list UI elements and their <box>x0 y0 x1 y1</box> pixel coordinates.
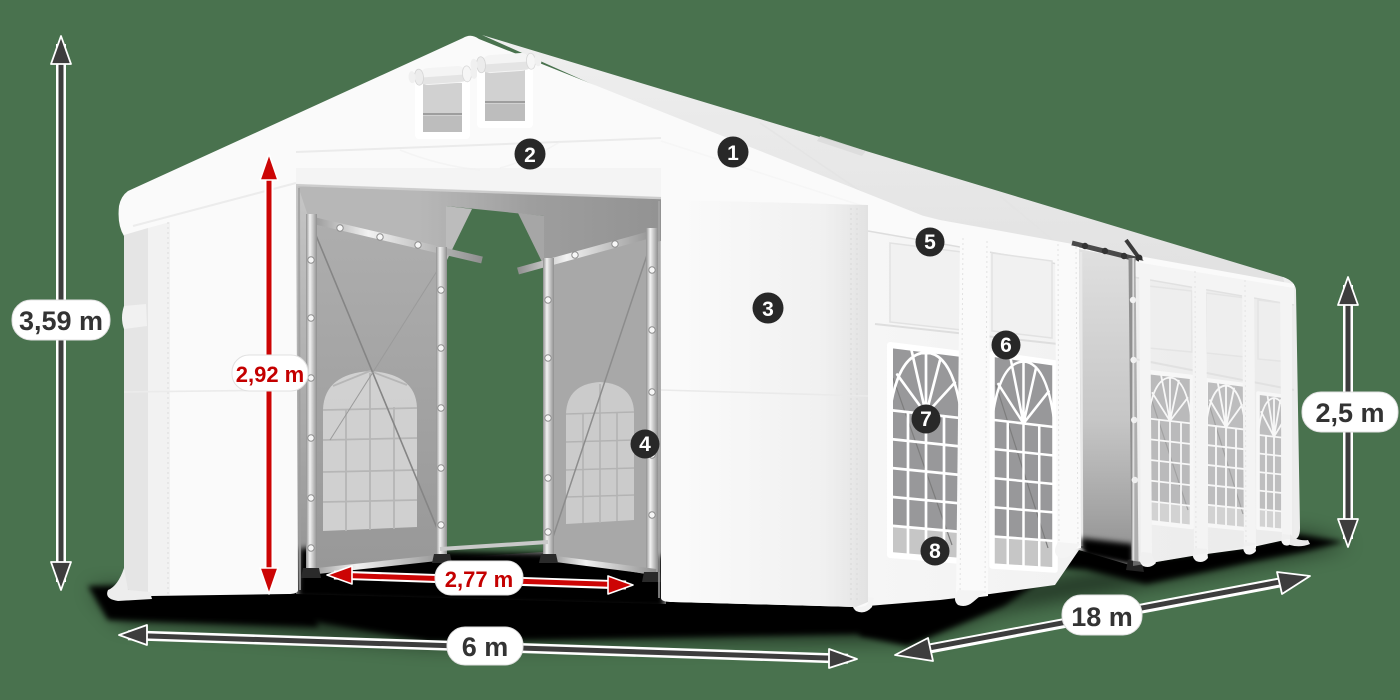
svg-text:8: 8 <box>929 540 941 563</box>
svg-text:2,77 m: 2,77 m <box>445 567 514 592</box>
svg-text:2,5 m: 2,5 m <box>1315 398 1384 428</box>
svg-text:3: 3 <box>762 298 774 321</box>
svg-text:6 m: 6 m <box>462 632 509 662</box>
svg-text:3,59 m: 3,59 m <box>19 306 103 336</box>
svg-text:2: 2 <box>524 144 536 167</box>
svg-text:6: 6 <box>1000 334 1012 357</box>
svg-text:2,92 m: 2,92 m <box>236 362 305 387</box>
svg-text:5: 5 <box>924 231 936 254</box>
svg-text:18 m: 18 m <box>1071 602 1133 632</box>
svg-text:7: 7 <box>920 408 932 431</box>
svg-text:1: 1 <box>727 142 739 165</box>
svg-text:4: 4 <box>639 433 651 456</box>
